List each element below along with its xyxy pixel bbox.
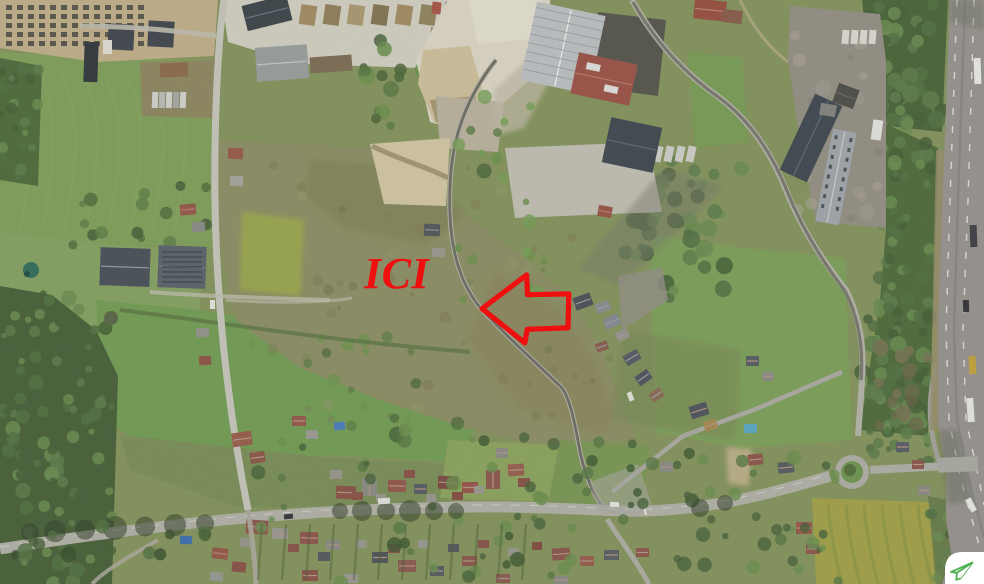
svg-text:ICI: ICI	[363, 249, 430, 298]
